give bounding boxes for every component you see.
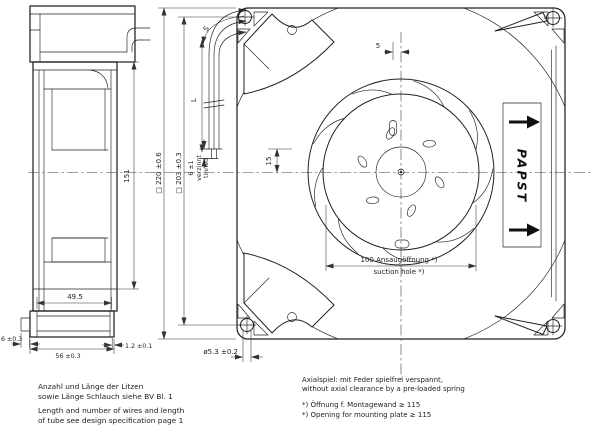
hub-hole <box>356 155 368 169</box>
note-wires-en-2: of tube see design specification page 1 <box>38 416 184 425</box>
side-body <box>33 62 117 311</box>
side-flange <box>30 311 114 337</box>
technical-drawing-page: 151 49.5 56 ±0.3 6 ±0.3 1.2 ±0.1 <box>0 0 600 430</box>
shaft-center <box>400 171 402 173</box>
note-axial-de: Axialspiel: mit Feder spielfrei verspann… <box>302 376 443 384</box>
fan-technical-drawing: 151 49.5 56 ±0.3 6 ±0.3 1.2 ±0.1 <box>0 0 600 430</box>
notes: Anzahl und Länge der Litzen sowie Länge … <box>38 376 465 425</box>
dim-5: 5 <box>376 42 380 50</box>
brand-label: PAPST <box>503 103 541 247</box>
side-view-dimensions: 151 49.5 56 ±0.3 6 ±0.3 1.2 ±0.1 <box>1 62 152 360</box>
dim-151: 151 <box>123 169 131 182</box>
note-wires-en-1: Length and number of wires and length <box>38 406 185 415</box>
corner-strut-top-left <box>244 14 334 94</box>
front-view: PAPST 5 15 100 Ansaugöffnung *) suction … <box>203 0 578 383</box>
lead-outline <box>219 32 246 55</box>
dim-l: L <box>190 98 198 102</box>
dim-suction-de: 100 Ansaugöffnung *) <box>361 256 438 264</box>
note-axial-en: without axial clearance by a pre-loaded … <box>302 385 465 393</box>
edge-strut-top-right <box>495 13 547 32</box>
dim-6: 6 ±0.3 <box>1 336 22 343</box>
dim-56: 56 ±0.3 <box>55 353 80 360</box>
dim-15: 15 <box>265 157 273 166</box>
hub-hole <box>423 140 436 147</box>
impeller-generated-geometry <box>314 81 493 262</box>
airflow-arrow-icon <box>527 116 540 129</box>
motor-block <box>52 238 105 262</box>
edge-strut-bottom-right <box>495 316 547 335</box>
dim-hole-dia: ø5.3 ±0.2 <box>203 348 238 356</box>
corner-strut-bottom-left <box>244 253 334 333</box>
hub-hole <box>385 126 397 140</box>
dim-s: S <box>202 24 211 33</box>
note-opening-de: *) Öffnung f. Montagewand ≥ 115 <box>302 400 420 409</box>
dim-suction-en: suction hole *) <box>374 268 425 276</box>
label-tinned: tinned <box>203 158 210 178</box>
impeller-blade-edges <box>314 81 493 262</box>
dim-6-1: 6 ±1 <box>188 160 195 175</box>
note-wires-de-1: Anzahl und Länge der Litzen <box>38 382 144 391</box>
dim-1-2: 1.2 ±0.1 <box>125 343 152 350</box>
lead-outline <box>214 21 246 55</box>
dim-203: □ 203 ±0.3 <box>175 152 183 193</box>
corner-gusset <box>552 29 564 43</box>
corner-gusset <box>552 304 564 318</box>
hub-hole <box>366 197 379 204</box>
dim-49-5: 49.5 <box>67 293 83 301</box>
airflow-arrow-icon <box>527 224 540 237</box>
flange-tab <box>21 318 30 331</box>
housing-fillet <box>90 70 108 88</box>
hub-hole <box>433 175 445 189</box>
dim-220: □ 220 ±0.6 <box>155 152 163 194</box>
hub-hole <box>406 204 418 218</box>
note-wires-de-2: sowie Länge Schlauch siehe BV Bl. 1 <box>38 392 173 401</box>
label-verzinnt: verzinnt <box>196 155 203 181</box>
brand-text: PAPST <box>515 149 530 203</box>
note-opening-en: *) Opening for mounting plate ≥ 115 <box>302 411 431 419</box>
balance-slot-bottom <box>395 240 409 248</box>
side-top-housing <box>30 6 135 62</box>
